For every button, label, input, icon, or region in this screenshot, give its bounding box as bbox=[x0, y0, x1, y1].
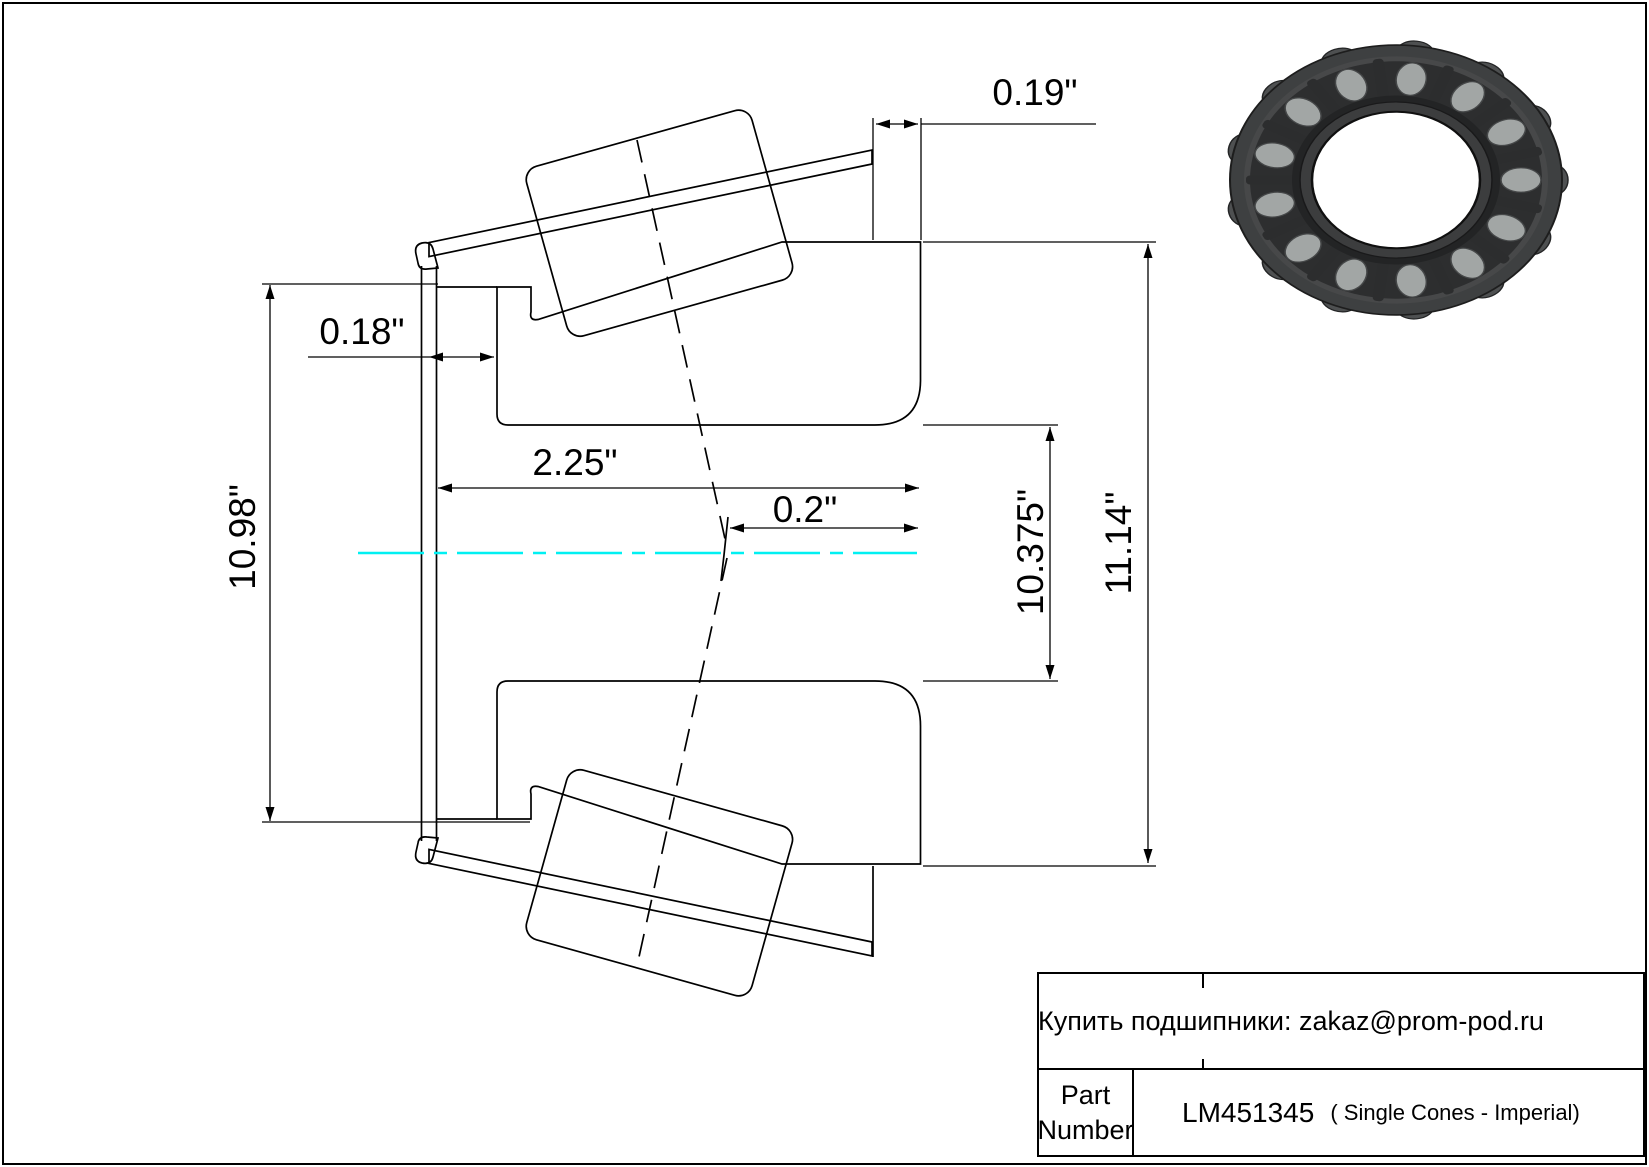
shield-strip-top bbox=[429, 150, 872, 257]
title-block: Купить подшипники: zakaz@prom-pod.ru Par… bbox=[1037, 972, 1645, 1157]
dim-10-375-label: 10.375" bbox=[1010, 489, 1051, 615]
dimensions: 0.19" 0.18" 2.25" 0.2" bbox=[222, 72, 1156, 866]
bearing-photo bbox=[1225, 39, 1568, 320]
roller-bottom bbox=[523, 767, 796, 1000]
title-block-tick-bottom bbox=[1202, 1059, 1204, 1068]
dimension-bore: 10.375" bbox=[923, 425, 1058, 681]
dimension-apex-offset: 0.2" bbox=[730, 489, 918, 533]
shield-curl-bottom bbox=[416, 837, 438, 864]
dimension-cone-width: 2.25" bbox=[438, 442, 919, 493]
part-label-line2: Number bbox=[1037, 1113, 1133, 1147]
title-block-part-row: Part Number LM451345 ( Single Cones - Im… bbox=[1039, 1070, 1643, 1155]
part-number-value: LM451345 bbox=[1182, 1097, 1314, 1129]
dim-10-98-label: 10.98" bbox=[222, 484, 263, 590]
roller-top bbox=[523, 107, 796, 340]
part-number-note: ( Single Cones - Imperial) bbox=[1330, 1100, 1579, 1126]
roller-axis-top bbox=[637, 140, 727, 548]
title-block-contact-cell: Купить подшипники: zakaz@prom-pod.ru bbox=[1039, 974, 1643, 1070]
dim-0-19-label: 0.19" bbox=[992, 72, 1077, 113]
part-number-label-cell: Part Number bbox=[1039, 1070, 1134, 1155]
bearing-bore bbox=[1312, 112, 1480, 249]
drawing-sheet: 0.19" 0.18" 2.25" 0.2" bbox=[0, 0, 1649, 1167]
dimension-front-gap: 0.18" bbox=[308, 311, 494, 362]
title-block-tick-top bbox=[1202, 974, 1204, 988]
roller-axis-bottom bbox=[637, 558, 727, 966]
contact-text: Купить подшипники: zakaz@prom-pod.ru bbox=[1038, 1006, 1544, 1037]
dim-0-2-label: 0.2" bbox=[773, 489, 838, 530]
dimension-top-rib: 0.19" bbox=[873, 72, 1096, 240]
shield-curl-top bbox=[416, 243, 438, 270]
dim-2-25-label: 2.25" bbox=[532, 442, 617, 483]
dim-11-14-label: 11.14" bbox=[1098, 492, 1139, 595]
dim-0-18-label: 0.18" bbox=[319, 311, 404, 352]
part-label-line1: Part bbox=[1061, 1078, 1111, 1112]
part-number-value-cell: LM451345 ( Single Cones - Imperial) bbox=[1134, 1070, 1643, 1155]
cone-section-top bbox=[497, 242, 921, 425]
cone-section-bottom bbox=[497, 681, 921, 864]
